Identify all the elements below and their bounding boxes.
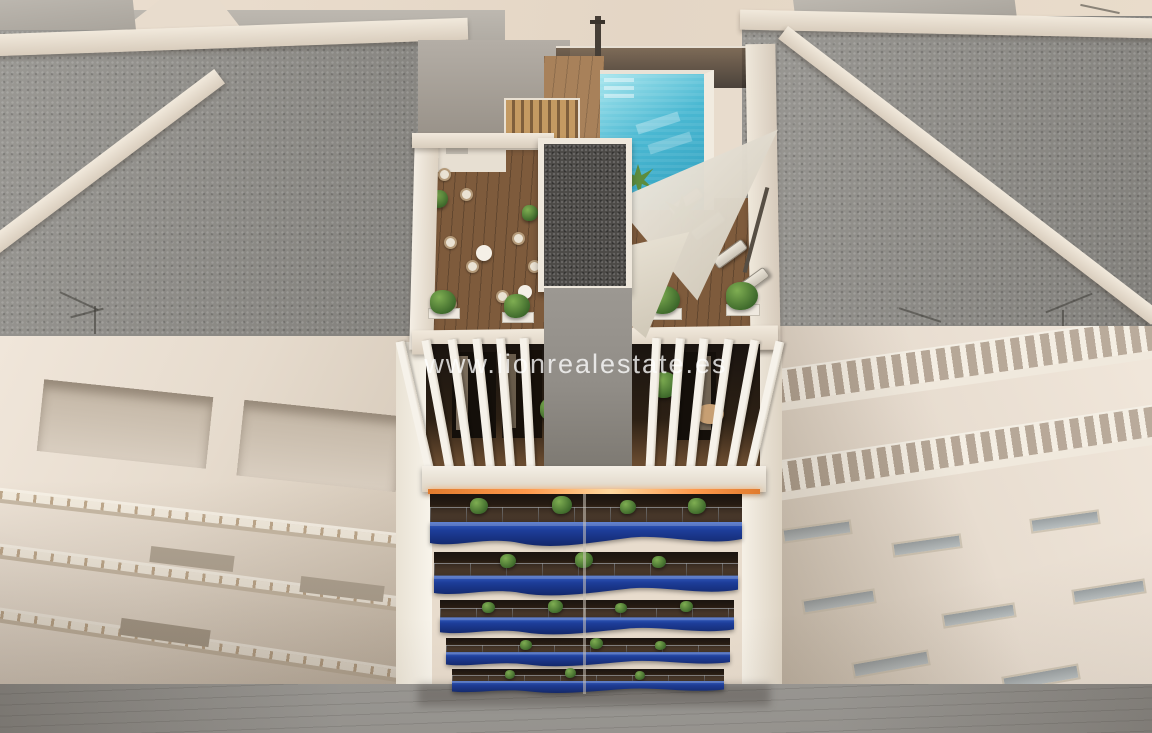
balcony-band-blue — [440, 616, 734, 640]
terrace-chair — [466, 260, 479, 273]
balcony-band-blue — [430, 520, 742, 554]
terrace-table — [476, 245, 492, 261]
right-building-facade — [742, 326, 1152, 694]
watermark-text: www.lionrealestate.es — [0, 349, 1152, 380]
right-facade-shadow — [742, 326, 1152, 694]
balcony-center-post — [583, 494, 586, 694]
pool-steps — [604, 76, 634, 98]
left-facade-shadow — [0, 336, 424, 698]
roof-antenna — [94, 306, 96, 334]
balcony-band-blue — [452, 680, 724, 697]
core-roof-gravel — [538, 138, 632, 292]
terrace-chair — [444, 236, 457, 249]
balcony-band-blue — [446, 651, 730, 671]
terrace-chair — [460, 188, 473, 201]
outdoor-shower-head — [590, 20, 605, 24]
balcony-band-blue — [434, 574, 738, 602]
rooftop-parapet-northwest — [412, 133, 554, 148]
left-building-facade — [0, 336, 424, 698]
terrace-chair — [512, 232, 525, 245]
architectural-render-scene: www.lionrealestate.es — [0, 0, 1152, 733]
terrace-chair — [438, 168, 451, 181]
